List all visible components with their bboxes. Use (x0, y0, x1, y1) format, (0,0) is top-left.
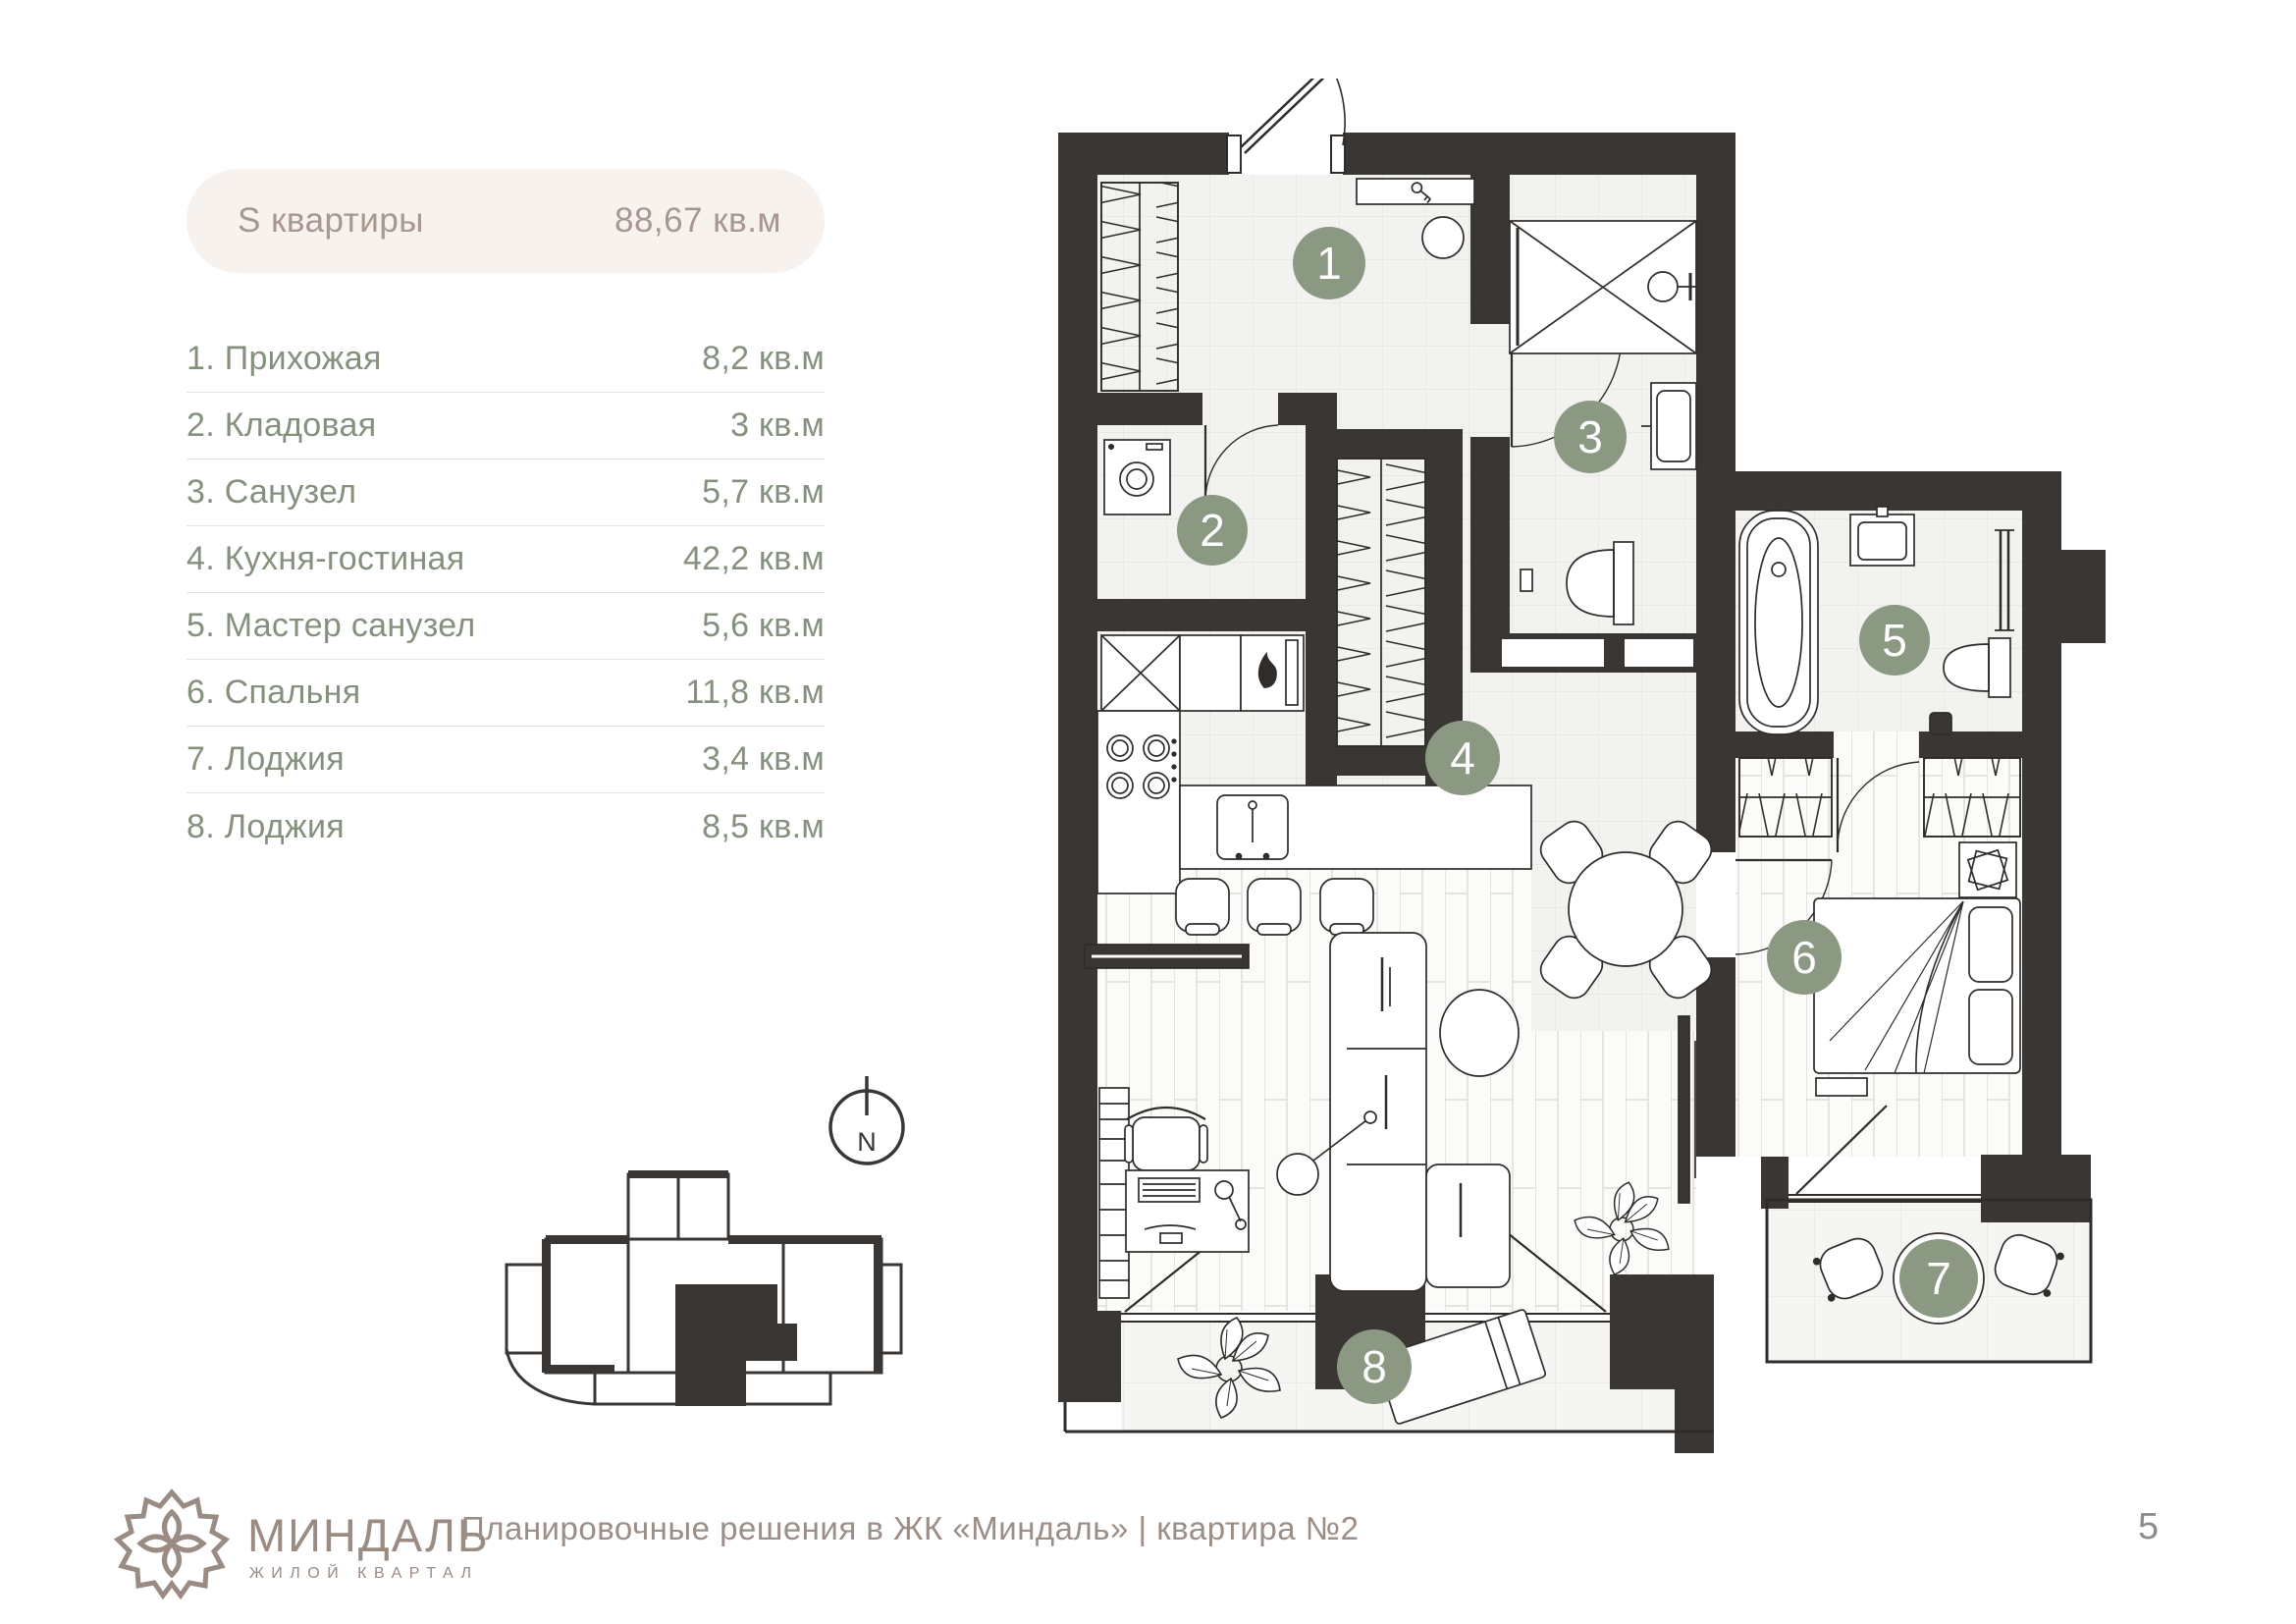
room-label: 4. Кухня-гостиная (187, 540, 464, 578)
bench (1816, 1078, 1867, 1096)
master-sink (1850, 507, 1914, 566)
badge-8: 8 (1362, 1341, 1387, 1392)
room-label: 3. Санузел (187, 473, 356, 512)
brand-name: МИНДАЛЬ (247, 1508, 490, 1562)
kitchen-hob-counter (1097, 711, 1180, 893)
dining-table (1569, 852, 1682, 966)
bed (1814, 898, 2020, 1073)
badge-5: 5 (1882, 615, 1907, 666)
badge-1: 1 (1316, 238, 1342, 289)
summary-label: S квартиры (238, 201, 424, 241)
table-row: 1. Прихожая 8,2 кв.м (187, 326, 825, 393)
room-area: 5,7 кв.м (702, 473, 825, 512)
room-label: 6. Спальня (187, 674, 360, 712)
tp-holder (1521, 569, 1532, 591)
shower (1510, 221, 1696, 353)
badge-3: 3 (1577, 411, 1603, 462)
table-row: 6. Спальня 11,8 кв.м (187, 660, 825, 727)
building-locator (491, 1139, 923, 1434)
room-area: 5,6 кв.м (702, 607, 825, 645)
badge-6: 6 (1791, 932, 1817, 983)
coffee-table (1440, 990, 1519, 1076)
bathtub (1739, 511, 1818, 734)
washing-machine (1104, 440, 1170, 514)
kitchen-oven (1241, 635, 1304, 711)
room-label: 5. Мастер санузел (187, 607, 475, 645)
entrance-door (1227, 79, 1345, 173)
brand-flower-icon (110, 1485, 234, 1602)
room-label: 2. Кладовая (187, 406, 376, 445)
table-row: 4. Кухня-гостиная 42,2 кв.м (187, 526, 825, 593)
tv (1679, 1016, 1689, 1203)
desk (1126, 1170, 1249, 1252)
bookshelf (1099, 1088, 1129, 1298)
floor-plan: 1 2 3 4 5 6 7 8 (1041, 79, 2130, 1463)
badge-4: 4 (1450, 732, 1475, 784)
kitchen-island (1180, 785, 1531, 869)
room-area: 11,8 кв.м (685, 674, 825, 712)
side-table (1959, 842, 2016, 897)
table-row: 2. Кладовая 3 кв.м (187, 393, 825, 460)
table-row: 3. Санузел 5,7 кв.м (187, 460, 825, 526)
page-caption: Планировочные решения в ЖК «Миндаль» | к… (461, 1510, 1360, 1547)
floorplan-page: S квартиры 88,67 кв.м 1. Прихожая 8,2 кв… (0, 0, 2296, 1624)
kitchen-fridge (1101, 635, 1180, 711)
table-row: 7. Лоджия 3,4 кв.м (187, 727, 825, 793)
highlighted-apartment (675, 1284, 797, 1406)
apartment-area-summary: S квартиры 88,67 кв.м (187, 169, 825, 273)
room-label: 7. Лоджия (187, 740, 345, 779)
bedroom-wardrobe-left (1739, 758, 1832, 837)
kitchen-counter (1180, 635, 1241, 711)
summary-value: 88,67 кв.м (614, 201, 781, 241)
room-area: 3,4 кв.м (702, 740, 825, 779)
room-area-table: 1. Прихожая 8,2 кв.м 2. Кладовая 3 кв.м … (187, 326, 825, 860)
room-label: 8. Лоджия (187, 808, 345, 846)
room-area: 42,2 кв.м (683, 540, 825, 578)
room-area: 8,5 кв.м (702, 808, 825, 846)
bar-stools (1176, 879, 1373, 935)
badge-2: 2 (1200, 505, 1225, 556)
hall-wardrobe (1101, 183, 1178, 391)
badge-7: 7 (1926, 1253, 1951, 1304)
media-console (1085, 945, 1249, 968)
room-area: 8,2 кв.м (702, 340, 825, 378)
table-row: 8. Лоджия 8,5 кв.м (187, 793, 825, 860)
brand-subtitle: ЖИЛОЙ КВАРТАЛ (249, 1565, 479, 1583)
table-row: 5. Мастер санузел 5,6 кв.м (187, 593, 825, 660)
bin (1930, 713, 1951, 734)
ceiling-light (1422, 217, 1464, 258)
room-label: 1. Прихожая (187, 340, 382, 378)
room-area: 3 кв.м (730, 406, 825, 445)
page-number: 5 (2138, 1506, 2159, 1548)
closet-wardrobe (1337, 459, 1425, 746)
bedroom-wardrobe-right (1924, 758, 2020, 837)
